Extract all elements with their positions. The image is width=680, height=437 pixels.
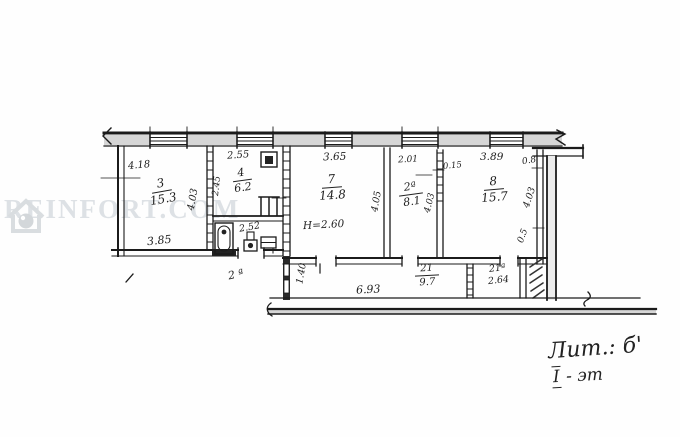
partition-21-21a xyxy=(467,264,473,298)
room-7-label: 7 14.8 xyxy=(309,172,355,205)
room-21-area: 9.7 xyxy=(410,275,445,289)
vent-box-icon xyxy=(261,152,277,167)
room-4-label: 4 6.2 xyxy=(222,165,261,197)
window-icon xyxy=(325,132,352,148)
window-icon xyxy=(490,132,523,148)
outer-wall-bottom xyxy=(267,303,656,316)
window-icon xyxy=(402,127,438,148)
dim-room8-top: 3.89 xyxy=(480,151,503,163)
toilet-icon xyxy=(244,232,257,251)
room-21a-label: 21ª 2.64 xyxy=(477,262,519,289)
room-7-height-note: H=2.60 xyxy=(303,218,345,232)
dim-wall-thickness: 0.15 xyxy=(443,160,463,172)
dim-room2a-top: 2.01 xyxy=(398,154,419,165)
porch-tick xyxy=(126,274,133,282)
room8-right-wall xyxy=(532,150,544,264)
floor-roman-numeral: I xyxy=(551,366,561,388)
hall-floor-line xyxy=(270,292,640,306)
stairs-hatch-marks xyxy=(530,259,544,298)
dim-room7-top: 3.65 xyxy=(323,151,347,164)
floor-plan-scan: REINFORT.COM xyxy=(0,0,680,437)
room-21-label: 21 9.7 xyxy=(409,262,444,289)
room-8-number: 8 xyxy=(483,174,504,190)
dim-room3-top: 4.18 xyxy=(128,159,151,172)
kitchen-bath-partition xyxy=(213,216,283,221)
room-7-number: 7 xyxy=(321,172,342,188)
floor-note: I - эт xyxy=(552,365,604,388)
partition-kitchen-room7 xyxy=(272,146,290,300)
partition-room3-kitchen xyxy=(207,146,213,250)
dim-hall-bottom: 6.93 xyxy=(356,282,381,296)
room-8-label: 8 15.7 xyxy=(471,173,517,206)
room-7-area: 14.8 xyxy=(310,186,355,204)
window-icon xyxy=(237,127,273,148)
stove-icon xyxy=(259,197,279,215)
partition-room7-room2a xyxy=(384,148,390,258)
floor-suffix: - эт xyxy=(566,365,604,387)
dim-kitchen-top: 2.55 xyxy=(227,149,250,162)
room-21-number: 21 xyxy=(414,262,439,276)
dim-room3-bottom: 3.85 xyxy=(146,233,172,248)
dim-kitchen-left: 2.45 xyxy=(211,176,223,197)
window-icon xyxy=(150,127,187,148)
